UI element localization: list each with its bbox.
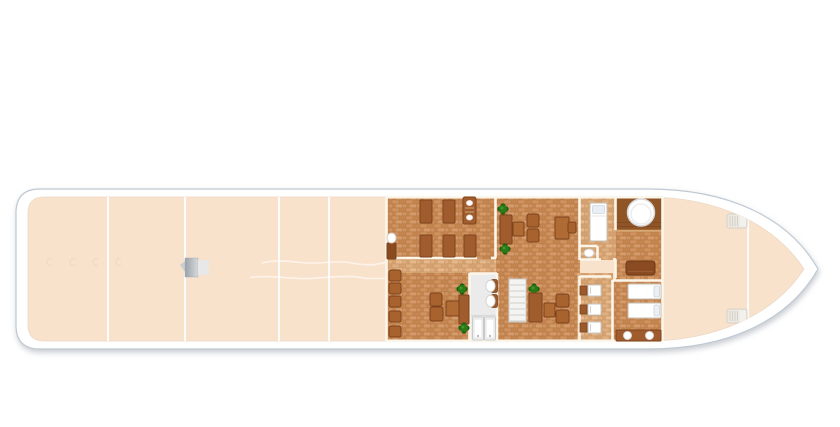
chair xyxy=(568,222,576,233)
bench xyxy=(443,200,455,223)
corridor-left xyxy=(387,259,496,273)
basin xyxy=(580,304,601,315)
basin xyxy=(580,322,601,333)
stall-door xyxy=(485,317,496,340)
stool xyxy=(389,270,401,281)
sofa xyxy=(626,261,655,275)
stall-door xyxy=(473,317,484,340)
oval-table xyxy=(387,233,396,243)
stairs xyxy=(509,279,526,322)
stool xyxy=(389,311,401,322)
stool xyxy=(389,283,401,294)
table xyxy=(513,222,524,236)
toilet xyxy=(486,295,498,308)
bed-v xyxy=(590,203,607,241)
table xyxy=(555,217,569,239)
basin xyxy=(580,285,601,296)
table xyxy=(544,303,555,317)
toilet xyxy=(486,280,498,293)
bench xyxy=(500,215,512,244)
chair xyxy=(527,229,539,242)
bench xyxy=(443,235,455,257)
bed-h xyxy=(628,303,661,318)
bed-h xyxy=(628,284,661,299)
table xyxy=(446,301,459,316)
bench xyxy=(529,293,542,322)
cabinet xyxy=(387,243,396,259)
lounger xyxy=(463,197,476,224)
tub xyxy=(628,199,655,226)
bar xyxy=(459,295,469,324)
chair xyxy=(527,214,539,227)
deck-plan xyxy=(0,0,840,427)
bench xyxy=(464,235,476,257)
chair xyxy=(430,307,443,321)
saloon-benches-room xyxy=(387,197,496,259)
chair xyxy=(430,293,442,306)
chair xyxy=(556,310,569,323)
sink xyxy=(584,249,594,257)
deck-plan-drawing xyxy=(0,0,840,427)
bench xyxy=(420,235,432,257)
bench xyxy=(420,200,432,223)
counter xyxy=(616,330,661,341)
chair xyxy=(556,294,569,307)
stool xyxy=(389,296,401,307)
stool xyxy=(389,326,401,337)
